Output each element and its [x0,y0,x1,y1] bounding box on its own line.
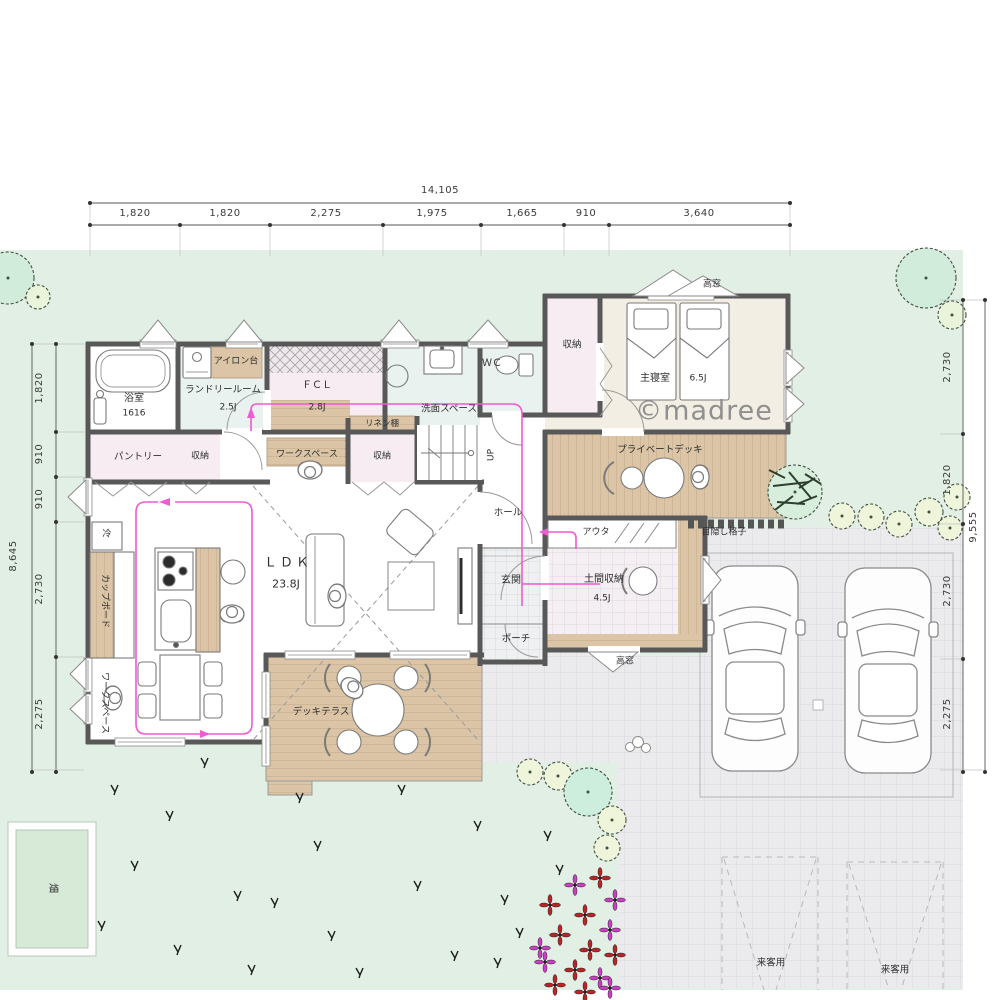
dim-top-seg: 1,820 [119,209,150,219]
dim-left-seg: 910 [35,489,45,510]
label-deck-terrace: デッキテラス [293,707,350,717]
label-laundry: ランドリールーム [185,385,261,395]
dim-left-seg: 2,730 [35,573,45,604]
person-icon [220,605,244,623]
label-closet-pantry: 収納 [191,453,209,462]
label-high-window-bottom: 高窓 [616,658,634,667]
label-lattice: 目隠し格子 [701,529,746,538]
dim-top-total: 14,105 [421,186,459,196]
label-bathroom-size: 1616 [123,410,146,419]
label-hall: ホール [494,508,523,518]
label-bedroom: 主寝室 [640,374,670,384]
label-workspace-side: ワークスペース [100,672,109,734]
label-fcl-size: 2.8J [309,404,326,413]
label-pantry: パントリー [114,452,162,462]
person-icon [328,584,346,608]
dim-top-seg: 910 [576,209,597,219]
label-linen-shelf: リネン棚 [365,420,399,429]
dim-top-seg: 1,975 [416,209,447,219]
person-icon [298,461,322,479]
label-porch: ポーチ [502,634,531,644]
dim-right-seg: 2,730 [943,351,953,382]
label-wc: ＷＣ [482,359,502,369]
label-doma-size: 4.5J [594,595,611,604]
label-ldk: ＬＤＫ [264,557,312,570]
label-field: 畑 [47,883,57,893]
label-cupboard: カップボード [100,574,109,628]
label-ironing-board: アイロン台 [214,358,259,367]
dim-left-seg: 1,820 [35,372,45,403]
label-guest-parking-right: 来客用 [881,965,910,975]
label-up: UP [488,449,497,461]
car-right [838,568,938,773]
watermark: ©madree [635,396,773,427]
label-doma-storage: 土間収納 [584,575,624,585]
label-fridge: 冷 [102,531,111,540]
dim-top-seg: 3,640 [683,209,714,219]
floor-plan-page: 14,105 1,820 1,820 2,275 1,975 1,665 910… [0,0,1000,1000]
label-wash-space: 洗面スペース [421,404,477,414]
dim-left-seg: 910 [35,444,45,465]
label-workspace-top: ワークスペース [276,451,338,460]
label-bathroom: 浴室 [124,394,144,404]
label-bedroom-size: 6.5J [690,375,707,384]
label-fcl: ＦＣＬ [302,381,332,391]
dim-left-total: 8,645 [9,540,19,571]
label-guest-parking-left: 来客用 [757,958,786,968]
car-left [705,566,805,771]
dim-top-seg: 1,820 [209,209,240,219]
dim-top-seg: 2,275 [310,209,341,219]
dim-right-seg: 2,275 [943,698,953,729]
dim-right-seg: 2,730 [943,575,953,606]
label-closet-wc: 収納 [562,340,581,350]
person-icon [691,465,709,489]
dim-left-seg: 2,275 [35,698,45,729]
label-private-deck: プライベートデッキ [617,445,703,455]
label-outer-closet: アウタ [582,529,609,538]
label-ldk-size: 23.8J [272,579,300,590]
dim-right-seg: 1,820 [943,464,953,495]
dim-top-seg: 1,665 [506,209,537,219]
label-entrance: 玄関 [501,576,521,586]
floor-plan-canvas [0,0,1000,1000]
dim-right-total: 9,555 [969,511,979,542]
label-high-window-top: 高窓 [703,281,721,290]
carport-post [813,700,823,710]
label-closet-stairs: 収納 [373,453,391,462]
label-laundry-size: 2.5J [220,404,237,413]
